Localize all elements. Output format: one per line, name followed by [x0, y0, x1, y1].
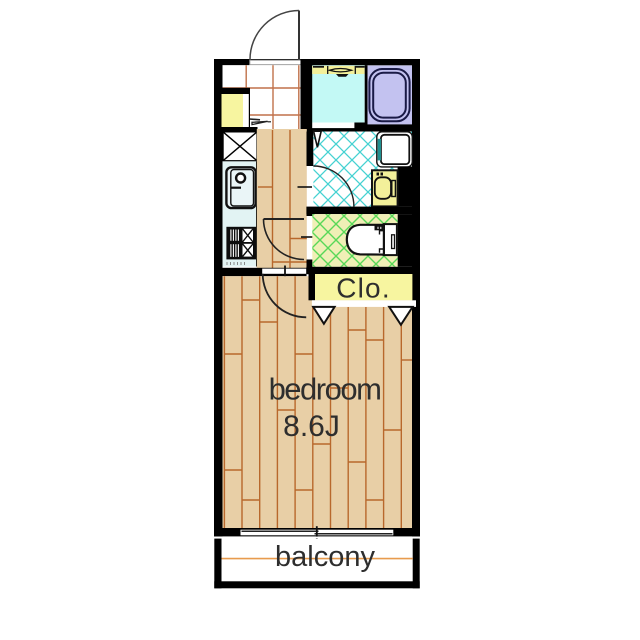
svg-text:8.6J: 8.6J	[283, 410, 340, 443]
svg-text:bedroom: bedroom	[269, 372, 381, 407]
svg-text:Clo.: Clo.	[336, 273, 391, 304]
svg-text:balcony: balcony	[275, 541, 375, 573]
